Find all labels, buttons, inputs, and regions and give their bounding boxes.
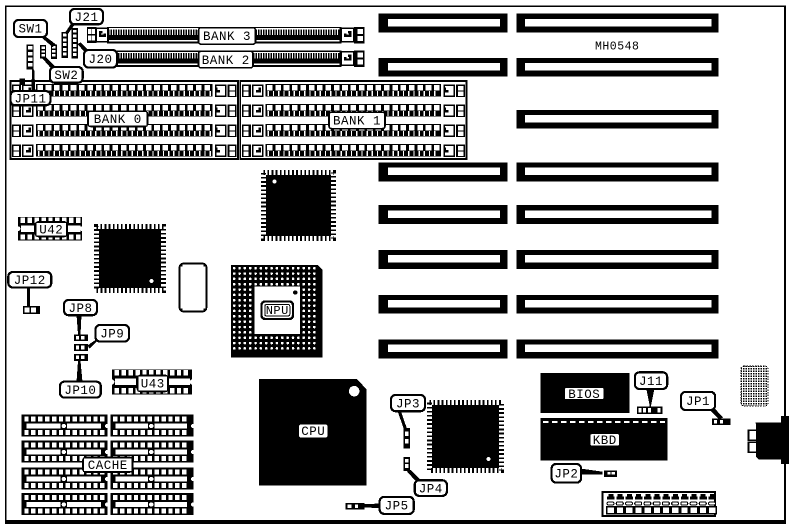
svg-text:JP10: JP10 — [64, 384, 96, 398]
svg-text:BANK 1: BANK 1 — [333, 115, 381, 129]
svg-text:BANK 0: BANK 0 — [94, 113, 142, 127]
svg-text:JP11: JP11 — [14, 92, 46, 106]
svg-text:JP9: JP9 — [100, 327, 124, 341]
svg-text:J11: J11 — [639, 375, 663, 389]
svg-text:NPU: NPU — [266, 304, 289, 318]
svg-text:JP12: JP12 — [14, 274, 46, 288]
svg-text:U42: U42 — [39, 223, 63, 237]
svg-text:JP5: JP5 — [385, 500, 409, 514]
svg-text:BIOS: BIOS — [568, 388, 600, 402]
svg-text:BANK 2: BANK 2 — [202, 54, 250, 68]
svg-text:CACHE: CACHE — [88, 459, 128, 473]
svg-text:J20: J20 — [88, 53, 112, 67]
svg-text:JP2: JP2 — [554, 468, 578, 482]
svg-text:SW1: SW1 — [18, 23, 42, 37]
svg-text:CPU: CPU — [301, 425, 325, 439]
svg-text:JP8: JP8 — [68, 302, 92, 316]
svg-text:MH0548: MH0548 — [595, 41, 639, 54]
svg-text:JP3: JP3 — [396, 397, 420, 411]
svg-text:J21: J21 — [74, 11, 98, 25]
svg-text:KBD: KBD — [593, 434, 617, 448]
svg-text:BANK 3: BANK 3 — [203, 30, 251, 44]
svg-text:SW2: SW2 — [54, 69, 78, 83]
svg-text:U43: U43 — [141, 378, 165, 392]
svg-text:JP4: JP4 — [419, 482, 443, 496]
svg-text:JP1: JP1 — [686, 395, 710, 409]
